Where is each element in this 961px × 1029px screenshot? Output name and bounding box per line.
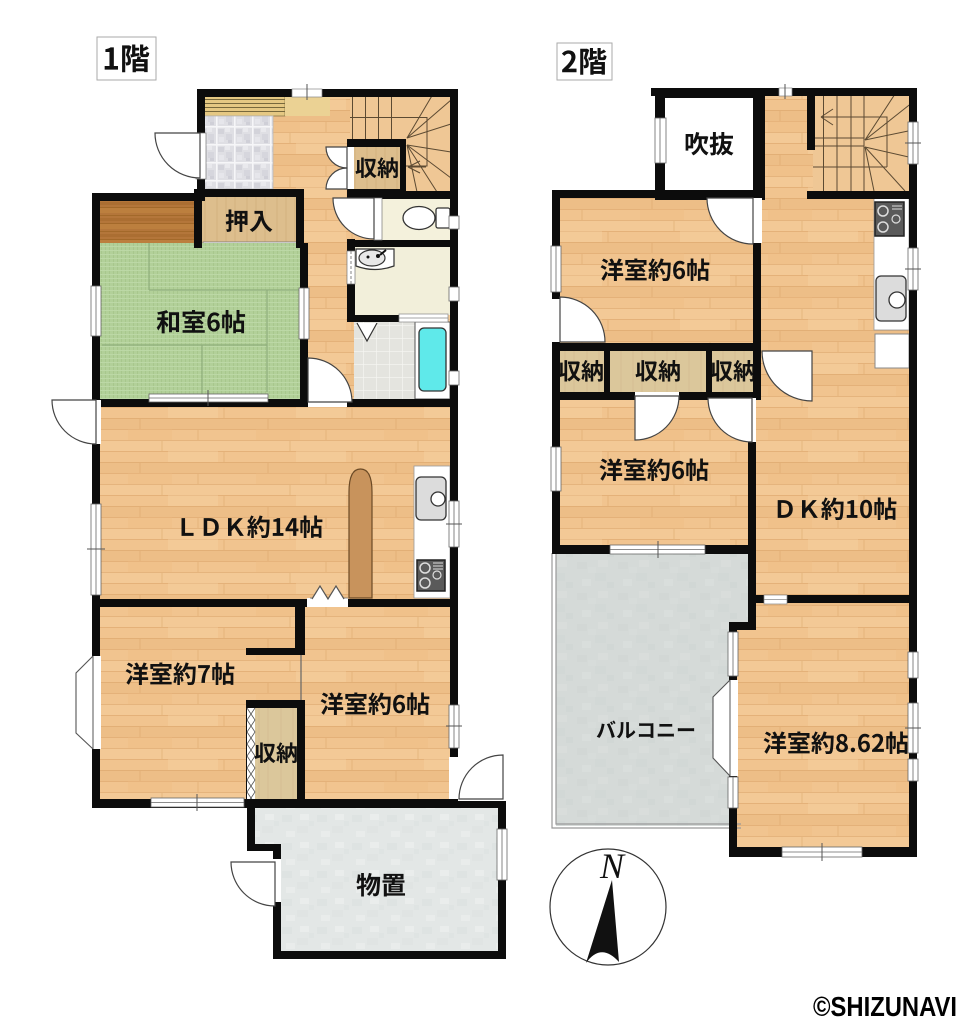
svg-text:N: N bbox=[599, 846, 626, 886]
svg-text:©SHIZUNAVI: ©SHIZUNAVI bbox=[813, 991, 957, 1022]
